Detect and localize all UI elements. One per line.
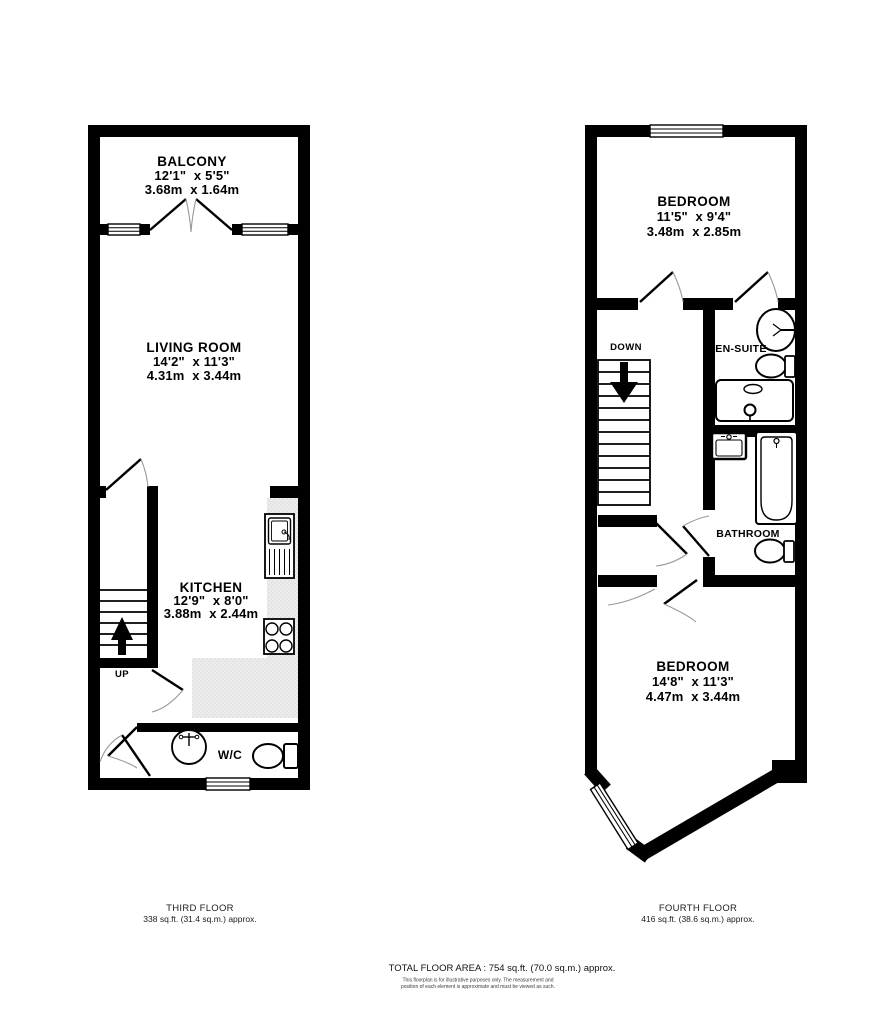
bedroom-back-dims-imperial: 14'8" x 11'3" [652,674,734,689]
third-floor-caption-area: 338 sq.ft. (31.4 sq.m.) approx. [143,914,256,924]
third-floor-plan: BALCONY 12'1" x 5'5" 3.68m x 1.64m LIVIN… [88,125,310,790]
balcony-french-doors [150,199,232,232]
wc-basin-icon [172,730,206,764]
up-label: UP [115,669,129,680]
bedroom-back-dims-metric: 4.47m x 3.44m [646,689,741,704]
floorplan-page: BALCONY 12'1" x 5'5" 3.68m x 1.64m LIVIN… [0,0,890,1024]
kitchen-sink-icon [265,514,294,578]
fourth-floor-caption-area: 416 sq.ft. (38.6 sq.m.) approx. [641,914,754,924]
kitchen-hob-icon [264,619,294,654]
fourth-floor-caption-title: FOURTH FLOOR [659,903,737,914]
bedroom-front-label: BEDROOM [657,194,730,209]
shower-icon [716,380,793,421]
total-floor-area: TOTAL FLOOR AREA : 754 sq.ft. (70.0 sq.m… [389,963,616,974]
kitchen-dims-metric: 3.88m x 2.44m [164,606,259,621]
bathroom-basin-icon [712,433,746,459]
bathroom-toilet-icon [755,540,794,563]
bedroom-front-dims-imperial: 11'5" x 9'4" [657,209,732,224]
bedroom-front-window [650,125,723,137]
living-room-dims-imperial: 14'2" x 11'3" [153,354,235,369]
fourth-floor-plan: BEDROOM 11'5" x 9'4" 3.48m x 2.85m DOWN … [585,125,807,857]
living-room-label: LIVING ROOM [146,340,241,355]
bathtub-icon [756,432,797,524]
living-room-dims-metric: 4.31m x 3.44m [147,368,242,383]
disclaimer-line-1: This floorplan is for illustrative purpo… [403,978,554,984]
bathroom-label: BATHROOM [716,528,779,540]
bedroom-front-door-right [735,272,778,302]
stairs-door [152,670,183,712]
down-label: DOWN [610,342,642,353]
third-floor-caption-title: THIRD FLOOR [166,903,234,914]
bathroom-door [683,516,709,556]
ensuite-label: EN-SUITE [715,343,766,355]
balcony-window-left [108,224,140,235]
ensuite-toilet-icon [756,355,795,378]
balcony-dims-imperial: 12'1" x 5'5" [154,168,229,183]
balcony-dims-metric: 3.68m x 1.64m [145,182,240,197]
floorplan-canvas: BALCONY 12'1" x 5'5" 3.68m x 1.64m LIVIN… [0,0,890,1024]
bay-window [591,783,639,850]
balcony-label: BALCONY [157,154,227,169]
bedroom-back-label: BEDROOM [656,659,729,674]
wc-door [108,727,137,768]
wc-toilet-icon [253,744,298,768]
closet-door [656,523,687,566]
balcony-window-right [242,224,288,235]
bedroom-front-dims-metric: 3.48m x 2.85m [647,224,742,239]
disclaimer-line-2: position of each element is approximate … [401,984,555,990]
living-room-door [106,459,148,490]
wc-label: W/C [218,748,242,762]
bedroom-front-door-left [640,272,683,302]
wc-window [206,778,250,790]
